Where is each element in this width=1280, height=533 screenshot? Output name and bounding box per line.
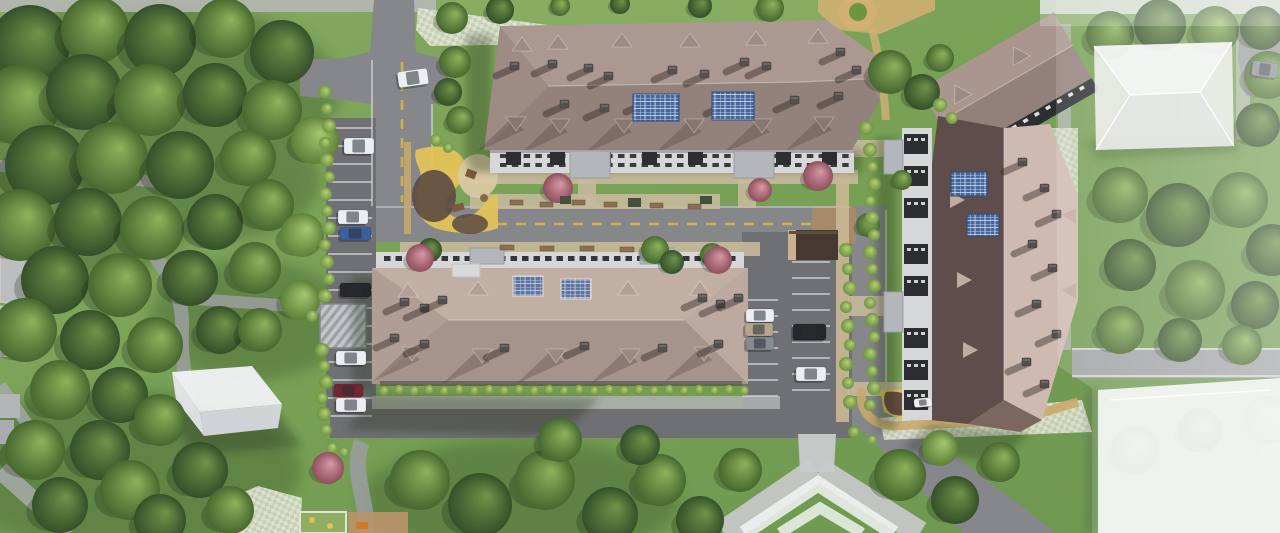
planter-box [700, 196, 712, 204]
window [618, 163, 625, 167]
hedge-bush [454, 385, 464, 395]
window [712, 163, 719, 167]
hedge-bush [319, 375, 333, 389]
balcony [642, 152, 657, 165]
hedge-bush [499, 386, 509, 396]
window [677, 154, 684, 158]
hedge-bush [865, 211, 879, 225]
balcony [904, 244, 928, 264]
bush [339, 447, 349, 457]
bench [650, 203, 663, 208]
hedge-bush [866, 365, 878, 377]
west-edge-roof [0, 394, 20, 418]
window [603, 256, 610, 261]
solar-panel [633, 94, 679, 121]
hedge-bush [321, 103, 333, 115]
hedge-bush [484, 385, 494, 395]
hedge-bush [319, 239, 331, 251]
window [724, 154, 731, 158]
entrance-canopy [884, 292, 903, 332]
hedge-bush [439, 386, 449, 396]
car [744, 309, 774, 324]
window [442, 256, 449, 261]
hedge-bush [323, 273, 335, 285]
building-b-facade-south [380, 381, 742, 386]
hedge-bush [867, 279, 881, 293]
bush [933, 98, 947, 112]
hedge-bush [318, 289, 332, 303]
window [795, 154, 802, 158]
bench [620, 247, 634, 252]
window [614, 256, 621, 261]
solar-panel [967, 214, 999, 236]
window [524, 163, 531, 167]
hedge-bush [322, 119, 336, 133]
hedge-bush [863, 347, 877, 361]
bench [688, 204, 701, 209]
hedge-bush [322, 221, 336, 235]
hedge-bush [469, 386, 479, 396]
hedge-bush [318, 360, 330, 372]
ghost-roof [1098, 378, 1280, 533]
window [630, 163, 637, 167]
balcony [904, 328, 928, 348]
solar-panel [712, 92, 754, 120]
hedge-bush [739, 386, 749, 396]
hedge-bush [604, 385, 614, 395]
car [336, 210, 368, 226]
window [842, 154, 849, 158]
window [677, 163, 684, 167]
balcony [688, 152, 703, 165]
bench [510, 200, 523, 205]
suv [791, 324, 826, 342]
car [332, 384, 363, 399]
hedge-bush [634, 385, 644, 395]
hedge-bush [323, 171, 335, 183]
hedge-bush [844, 339, 856, 351]
window [453, 256, 460, 261]
window [500, 163, 507, 167]
window [535, 154, 542, 158]
hedge-bush [514, 385, 524, 395]
bush [443, 143, 453, 153]
hedge-bush [649, 386, 659, 396]
bush [859, 121, 873, 135]
bush [848, 426, 860, 438]
hedge-bush [866, 161, 878, 173]
hedge-bush [842, 377, 854, 389]
hedge-bush [317, 407, 331, 421]
building-a-facade [490, 150, 854, 173]
bench [500, 245, 514, 250]
hedge-bush [868, 331, 880, 343]
hedge-bush [839, 243, 853, 257]
hedge-bush [318, 187, 332, 201]
skylight [513, 276, 543, 296]
window [842, 163, 849, 167]
site-plan-render [0, 0, 1280, 533]
entrance-canopy [734, 151, 774, 178]
hedge-bush [709, 386, 719, 396]
van [342, 138, 374, 156]
window [591, 256, 598, 261]
hedge-bush [863, 245, 877, 259]
hedge-bush [864, 399, 876, 411]
building-a-roof-north [500, 20, 880, 86]
car [743, 323, 773, 338]
planter-box [628, 198, 641, 207]
aerial-scene [0, 0, 1280, 533]
building-c-roof-west [930, 116, 1004, 424]
bench [540, 202, 553, 207]
ghost-shadow [1086, 390, 1098, 533]
hedge-bush [619, 386, 629, 396]
window [665, 154, 672, 158]
bush [306, 310, 318, 322]
hedge-bush [863, 143, 877, 157]
waste-shelter [788, 230, 838, 260]
window [724, 163, 731, 167]
mini-playground [300, 512, 408, 533]
window [568, 256, 575, 261]
hedge-bush [864, 195, 876, 207]
hedge-bush [321, 205, 333, 217]
window [396, 256, 403, 261]
window [522, 256, 529, 261]
hedge-bush [843, 281, 857, 295]
hedge-bush [867, 177, 881, 191]
hedge-bush [866, 263, 878, 275]
window [626, 256, 633, 261]
future-building-southeast [1086, 378, 1280, 533]
hedge-bush [840, 301, 852, 313]
hedge-bush [574, 385, 584, 395]
window [384, 256, 391, 261]
hedge-bush [529, 386, 539, 396]
entrance-canopy [470, 248, 504, 264]
bench [580, 246, 594, 251]
hedge-bush [843, 395, 857, 409]
window [534, 256, 541, 261]
hedge-bush [320, 255, 334, 269]
bush [430, 134, 442, 146]
balcony [904, 276, 928, 296]
veil-top [1040, 0, 1280, 26]
car [334, 351, 366, 367]
window [618, 154, 625, 158]
window [807, 154, 814, 158]
planter-box [560, 196, 571, 204]
window [630, 154, 637, 158]
car [338, 227, 371, 242]
future-building-northeast [1086, 42, 1240, 160]
balcony [904, 360, 928, 380]
window [500, 154, 507, 158]
hedge-bush [316, 392, 328, 404]
hedge-bush [318, 85, 332, 99]
balcony [904, 198, 928, 218]
window [524, 154, 531, 158]
balcony [506, 152, 521, 165]
car [338, 283, 371, 299]
hedge-bush [409, 386, 419, 396]
car [744, 337, 774, 352]
window [511, 256, 518, 261]
entrance-canopy [570, 151, 610, 178]
hedge-bush [559, 386, 569, 396]
solar-panel [951, 172, 987, 196]
hedge-bush [664, 385, 674, 395]
hedge-bush [589, 386, 599, 396]
hedge-bush [315, 343, 329, 357]
hedge-bush [842, 263, 854, 275]
bush [946, 112, 958, 124]
car [794, 367, 826, 383]
building-a [476, 20, 880, 178]
hedge-bush [319, 137, 331, 149]
bush [867, 435, 877, 445]
hedge-bush [424, 385, 434, 395]
play-digger [356, 522, 368, 529]
window [795, 163, 802, 167]
hedge-bush [544, 385, 554, 395]
hedge-bush [868, 229, 880, 241]
hedge-bush [864, 297, 876, 309]
bench [604, 202, 617, 207]
playground-rubber-dark [412, 170, 456, 222]
window [665, 163, 672, 167]
hedge-bush [839, 357, 853, 371]
entrance-canopy [884, 140, 903, 174]
balcony [904, 134, 928, 154]
window [557, 256, 564, 261]
hedge-bush [867, 381, 881, 395]
window [683, 256, 690, 261]
window [580, 256, 587, 261]
car [334, 398, 366, 414]
window [712, 154, 719, 158]
bench [540, 246, 554, 251]
planter-green [849, 3, 867, 21]
balcony [776, 152, 791, 165]
hedge-bush [394, 385, 404, 395]
hedge-bush [865, 313, 879, 327]
hedge-bush [694, 385, 704, 395]
roof-parapet [452, 264, 480, 277]
balcony [550, 152, 565, 165]
window [545, 256, 552, 261]
hedge-bush [379, 386, 389, 396]
bench [572, 200, 585, 205]
hedge-bush [320, 424, 332, 436]
skylight [561, 279, 591, 299]
hedge-bush [724, 385, 734, 395]
hedge-bush [679, 386, 689, 396]
hedge-bush [320, 153, 334, 167]
window [535, 163, 542, 167]
hedge-bush [841, 319, 855, 333]
